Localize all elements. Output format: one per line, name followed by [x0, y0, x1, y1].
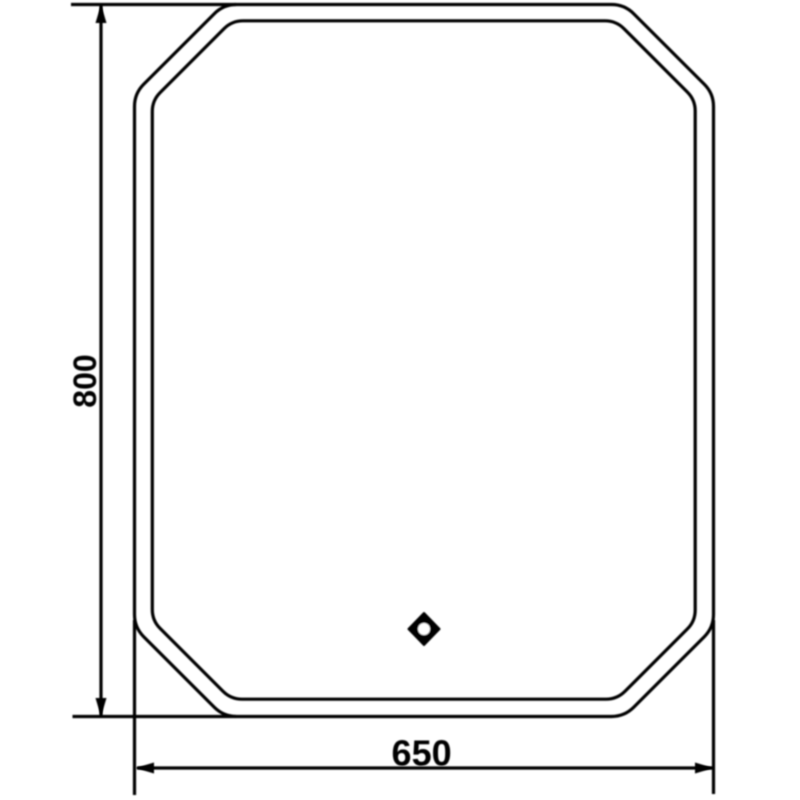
svg-text:800: 800: [67, 354, 103, 407]
svg-text:650: 650: [392, 733, 452, 774]
